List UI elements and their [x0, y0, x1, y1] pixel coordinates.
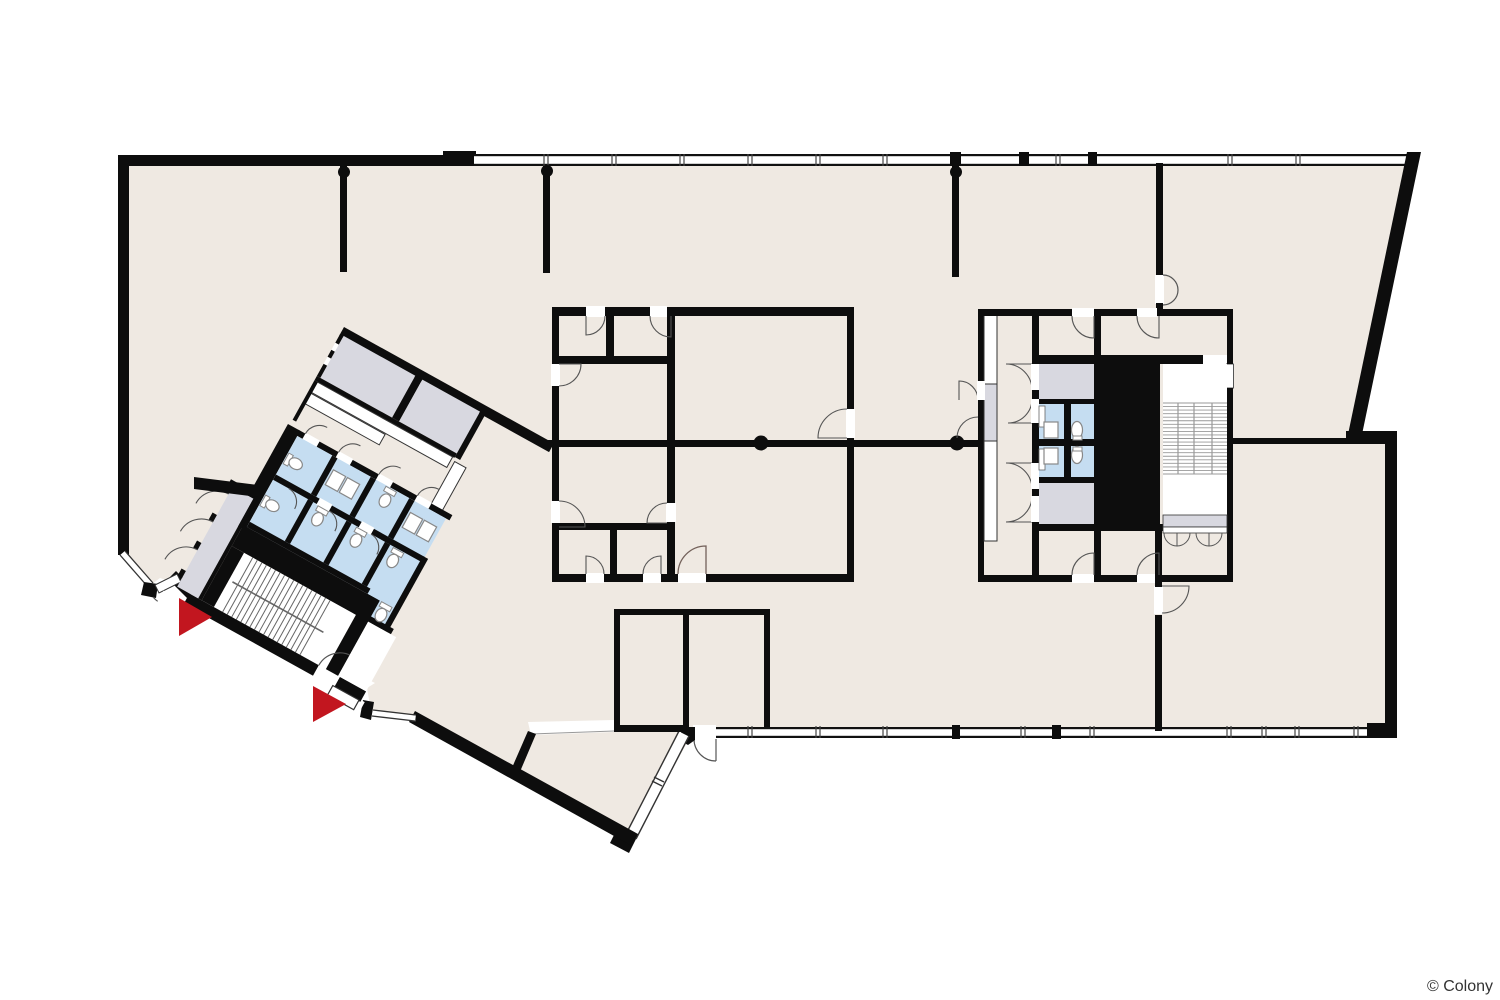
svg-text:© Colony: © Colony — [1427, 978, 1493, 995]
